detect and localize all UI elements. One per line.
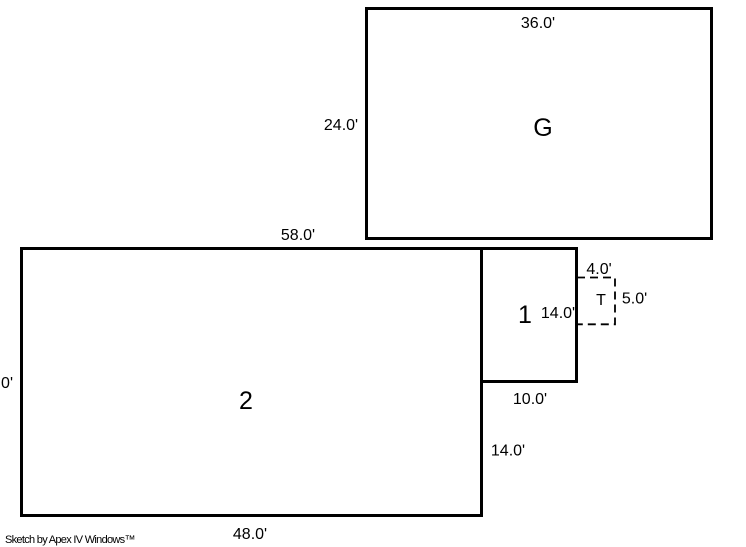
svg-text:4.0': 4.0' <box>586 261 611 278</box>
svg-text:36.0': 36.0' <box>521 15 555 32</box>
svg-text:1: 1 <box>518 301 532 329</box>
svg-text:48.0': 48.0' <box>233 526 267 543</box>
svg-text:T: T <box>596 292 606 309</box>
svg-text:58.0': 58.0' <box>281 227 315 244</box>
svg-text:2: 2 <box>239 387 253 415</box>
svg-text:Sketch by Apex IV Windows™: Sketch by Apex IV Windows™ <box>5 534 135 546</box>
svg-text:28.0': 28.0' <box>0 375 13 392</box>
svg-text:14.0': 14.0' <box>541 305 575 322</box>
svg-text:5.0': 5.0' <box>622 291 647 308</box>
svg-text:10.0': 10.0' <box>513 391 547 408</box>
svg-text:24.0': 24.0' <box>324 117 358 134</box>
svg-text:14.0': 14.0' <box>491 443 525 460</box>
svg-text:G: G <box>533 114 552 142</box>
